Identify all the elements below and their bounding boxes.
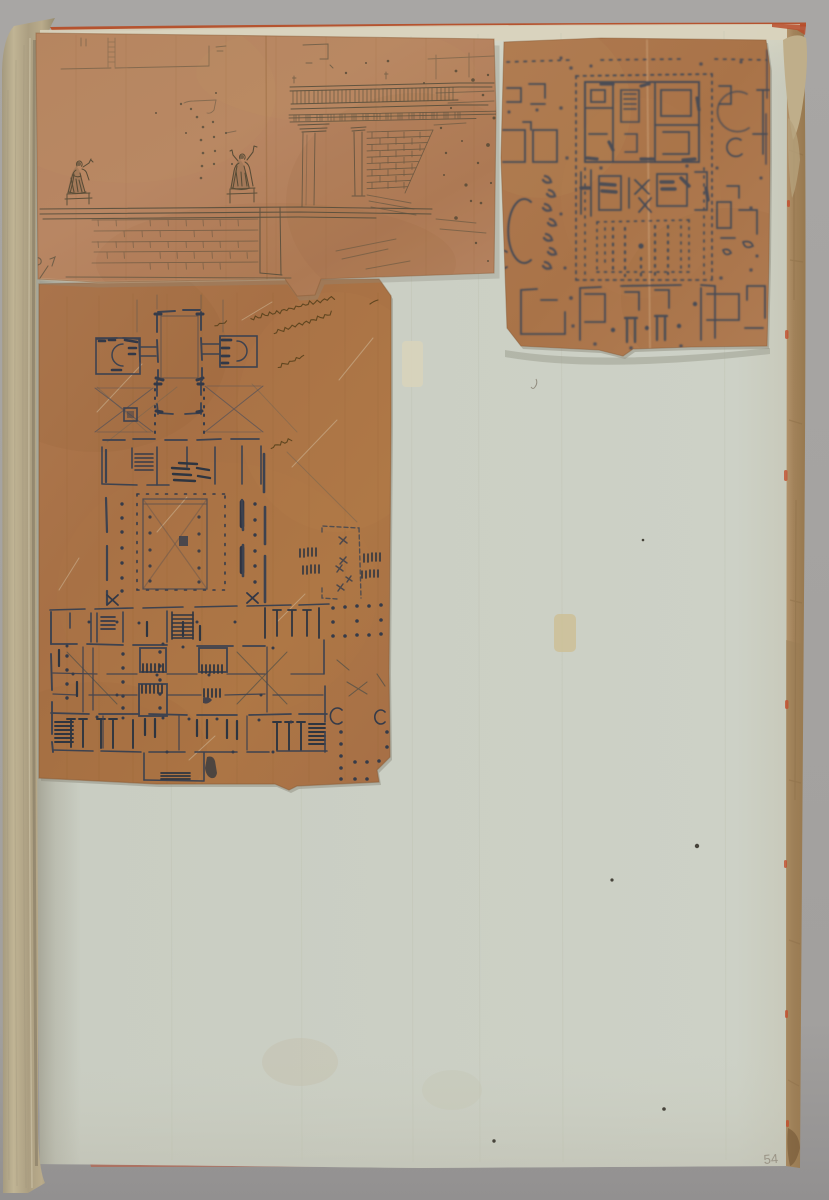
svg-text:54: 54 — [763, 1151, 779, 1167]
